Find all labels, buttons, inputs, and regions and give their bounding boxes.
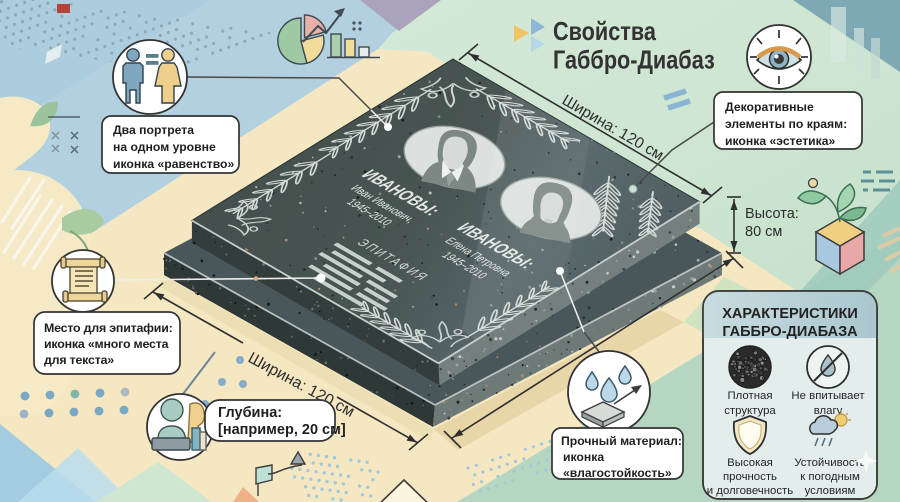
svg-text:ХАРАКТЕРИСТИКИ: ХАРАКТЕРИСТИКИ: [722, 306, 858, 322]
svg-text:Декоративные: Декоративные: [725, 100, 814, 114]
svg-text:Плотная: Плотная: [727, 390, 772, 402]
svg-text:Два портрета: Два портрета: [113, 123, 194, 137]
svg-text:Прочный материал:: Прочный материал:: [561, 434, 682, 448]
svg-text:«влагостойкость»: «влагостойкость»: [563, 466, 672, 480]
svg-text:Устойчивость: Устойчивость: [794, 457, 865, 469]
svg-text:Не впитывает: Не впитывает: [791, 390, 865, 402]
svg-text:иконка «равенство»: иконка «равенство»: [113, 157, 234, 171]
svg-text:прочность: прочность: [723, 471, 777, 483]
svg-text:ГАББРО-ДИАБАЗА: ГАББРО-ДИАБАЗА: [722, 324, 858, 340]
svg-text:Свойства: Свойства: [553, 18, 657, 46]
svg-text:Высота:: Высота:: [745, 206, 799, 222]
svg-text:Габбро-Диабаз: Габбро-Диабаз: [553, 47, 715, 75]
svg-text:иконка «много места: иконка «много места: [44, 337, 169, 351]
svg-text:иконка «эстетика»: иконка «эстетика»: [725, 134, 836, 148]
svg-text:Глубина:: Глубина:: [218, 405, 282, 421]
svg-text:к погодным: к погодным: [800, 471, 860, 483]
svg-text:и долговечность: и долговечность: [707, 485, 793, 497]
svg-text:Высокая: Высокая: [727, 457, 773, 469]
svg-text:[например, 20 см]: [например, 20 см]: [218, 422, 346, 438]
svg-text:Место для эпитафии:: Место для эпитафии:: [44, 321, 173, 335]
svg-text:иконка: иконка: [563, 450, 604, 464]
svg-text:на одном уровне: на одном уровне: [113, 140, 216, 154]
svg-text:80 см: 80 см: [745, 224, 782, 240]
svg-text:условиям: условиям: [805, 485, 856, 497]
svg-text:элементы по краям:: элементы по краям:: [725, 117, 847, 131]
svg-text:для текста»: для текста»: [44, 353, 114, 367]
